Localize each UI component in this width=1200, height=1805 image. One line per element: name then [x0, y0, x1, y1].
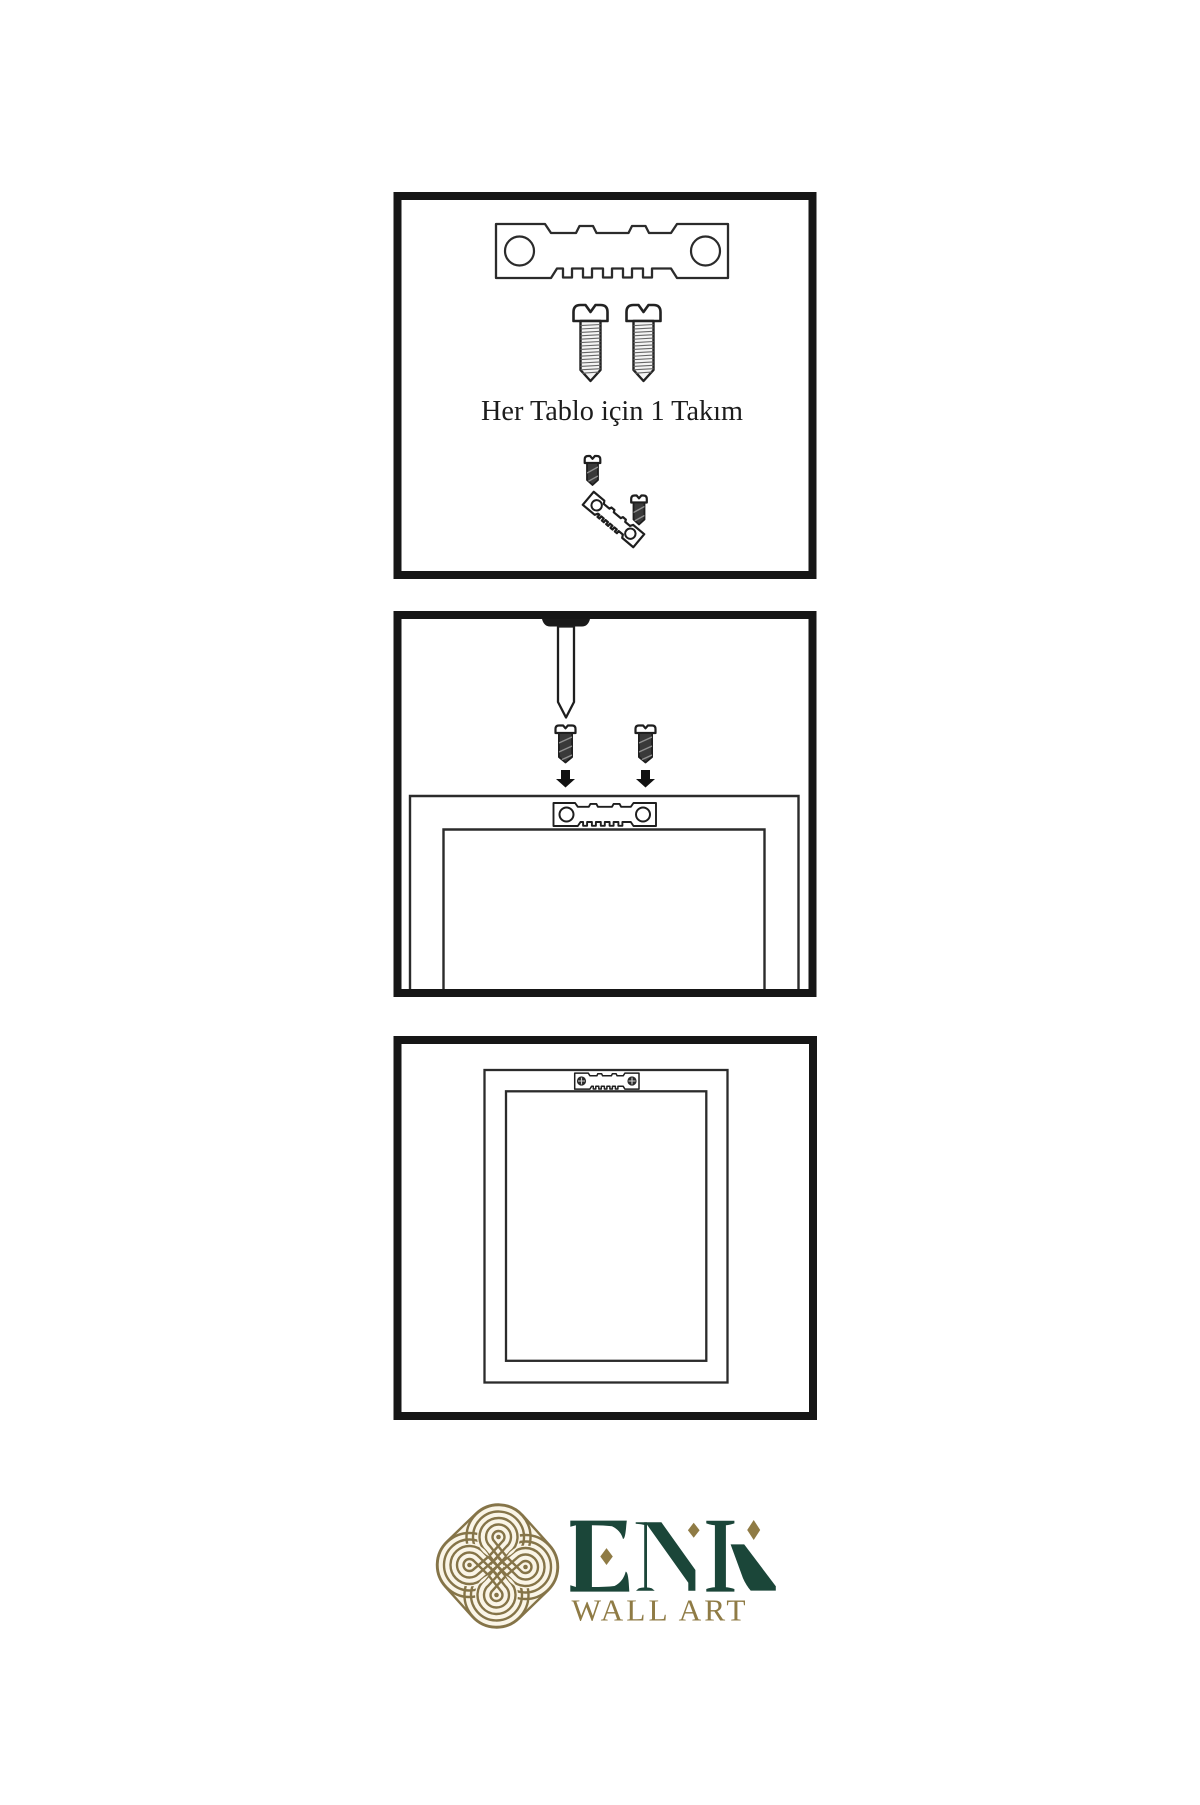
svg-text:Her Tablo için 1 Takım: Her Tablo için 1 Takım [481, 395, 743, 427]
svg-text:WALL ART: WALL ART [572, 1593, 749, 1628]
